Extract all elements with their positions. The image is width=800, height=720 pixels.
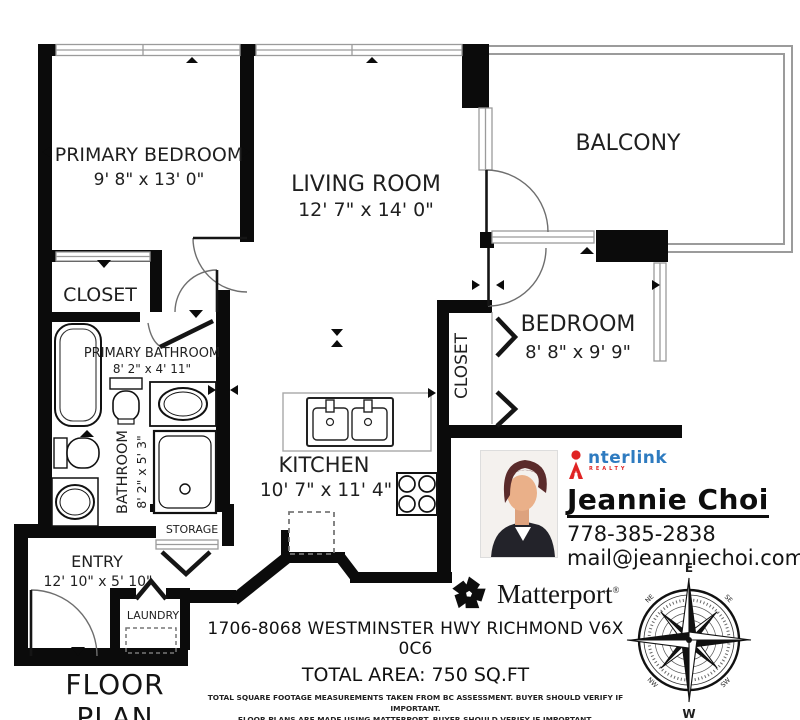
disclaimer-line-2: FLOOR PLANS ARE MADE USING MATTERPORT. B… [188, 714, 643, 720]
compass-ne-label: NE [644, 593, 656, 605]
agent-photo [480, 450, 558, 558]
fridge-dashed [289, 512, 334, 554]
label-primary-bedroom: PRIMARY BEDROOM [55, 144, 243, 166]
primary-vanity-sink [150, 382, 216, 426]
dims-entry: 12' 10" x 5' 10" [43, 574, 152, 590]
floor-plan-title: FLOOR PLAN [30, 668, 200, 720]
label-balcony: BALCONY [576, 131, 682, 156]
interlink-figure-icon [567, 450, 586, 481]
compass-east-label: E [685, 561, 693, 575]
label-closet: CLOSET [63, 284, 137, 306]
matterport-wordmark: Matterport [497, 579, 612, 609]
disclaimer-line-1: TOTAL SQUARE FOOTAGE MEASUREMENTS TAKEN … [188, 692, 643, 714]
dims-bathroom: 8' 2" x 5' 3" [134, 435, 149, 508]
label-kitchen: KITCHEN [279, 453, 370, 477]
interlink-logo: nterlink REALTY [567, 450, 800, 484]
dims-primary-bathroom: 8' 2" x 4' 11" [113, 362, 191, 376]
agent-panel: nterlink REALTY Jeannie Choi 778-385-283… [480, 450, 800, 569]
agent-name: Jeannie Choi [567, 485, 769, 518]
label-bedroom-closet: CLOSET [452, 332, 472, 399]
dims-bedroom: 8' 8" x 9' 9" [525, 342, 631, 363]
agent-phone: 778-385-2838 [567, 523, 800, 545]
kitchen-counter [283, 393, 431, 451]
label-laundry: LAUNDRY [127, 609, 180, 622]
primary-toilet [110, 378, 142, 424]
label-bedroom: BEDROOM [521, 312, 636, 337]
compass-rose-icon: E S W N NE SE SW NW [624, 556, 754, 720]
compass-se-label: SE [723, 593, 734, 604]
matterport-icon [449, 574, 489, 614]
dims-kitchen: 10' 7" x 11' 4" [260, 480, 392, 501]
compass-west-label: W [682, 707, 695, 720]
bathroom-sink [52, 478, 98, 526]
dims-living-room: 12' 7" x 14' 0" [298, 199, 434, 221]
floor-plan-image: PRIMARY BEDROOM 9' 8" x 13' 0" LIVING RO… [0, 0, 800, 720]
dims-primary-bedroom: 9' 8" x 13' 0" [94, 170, 205, 190]
label-entry: ENTRY [71, 552, 123, 571]
total-area: TOTAL AREA: 750 SQ.FT [188, 664, 643, 686]
address-block: 1706-8068 WESTMINSTER HWY RICHMOND V6X 0… [188, 619, 643, 720]
registered-mark: ® [612, 585, 619, 595]
label-primary-bathroom: PRIMARY BATHROOM [84, 346, 220, 361]
property-address: 1706-8068 WESTMINSTER HWY RICHMOND V6X 0… [188, 619, 643, 659]
label-living-room: LIVING ROOM [291, 172, 441, 197]
stove [397, 473, 437, 515]
bathtub [55, 324, 101, 426]
matterport-logo: Matterport® [449, 574, 619, 614]
bathroom-toilet [54, 438, 99, 468]
shower [154, 431, 216, 513]
label-storage: STORAGE [166, 523, 218, 536]
label-bathroom: BATHROOM [115, 430, 131, 514]
